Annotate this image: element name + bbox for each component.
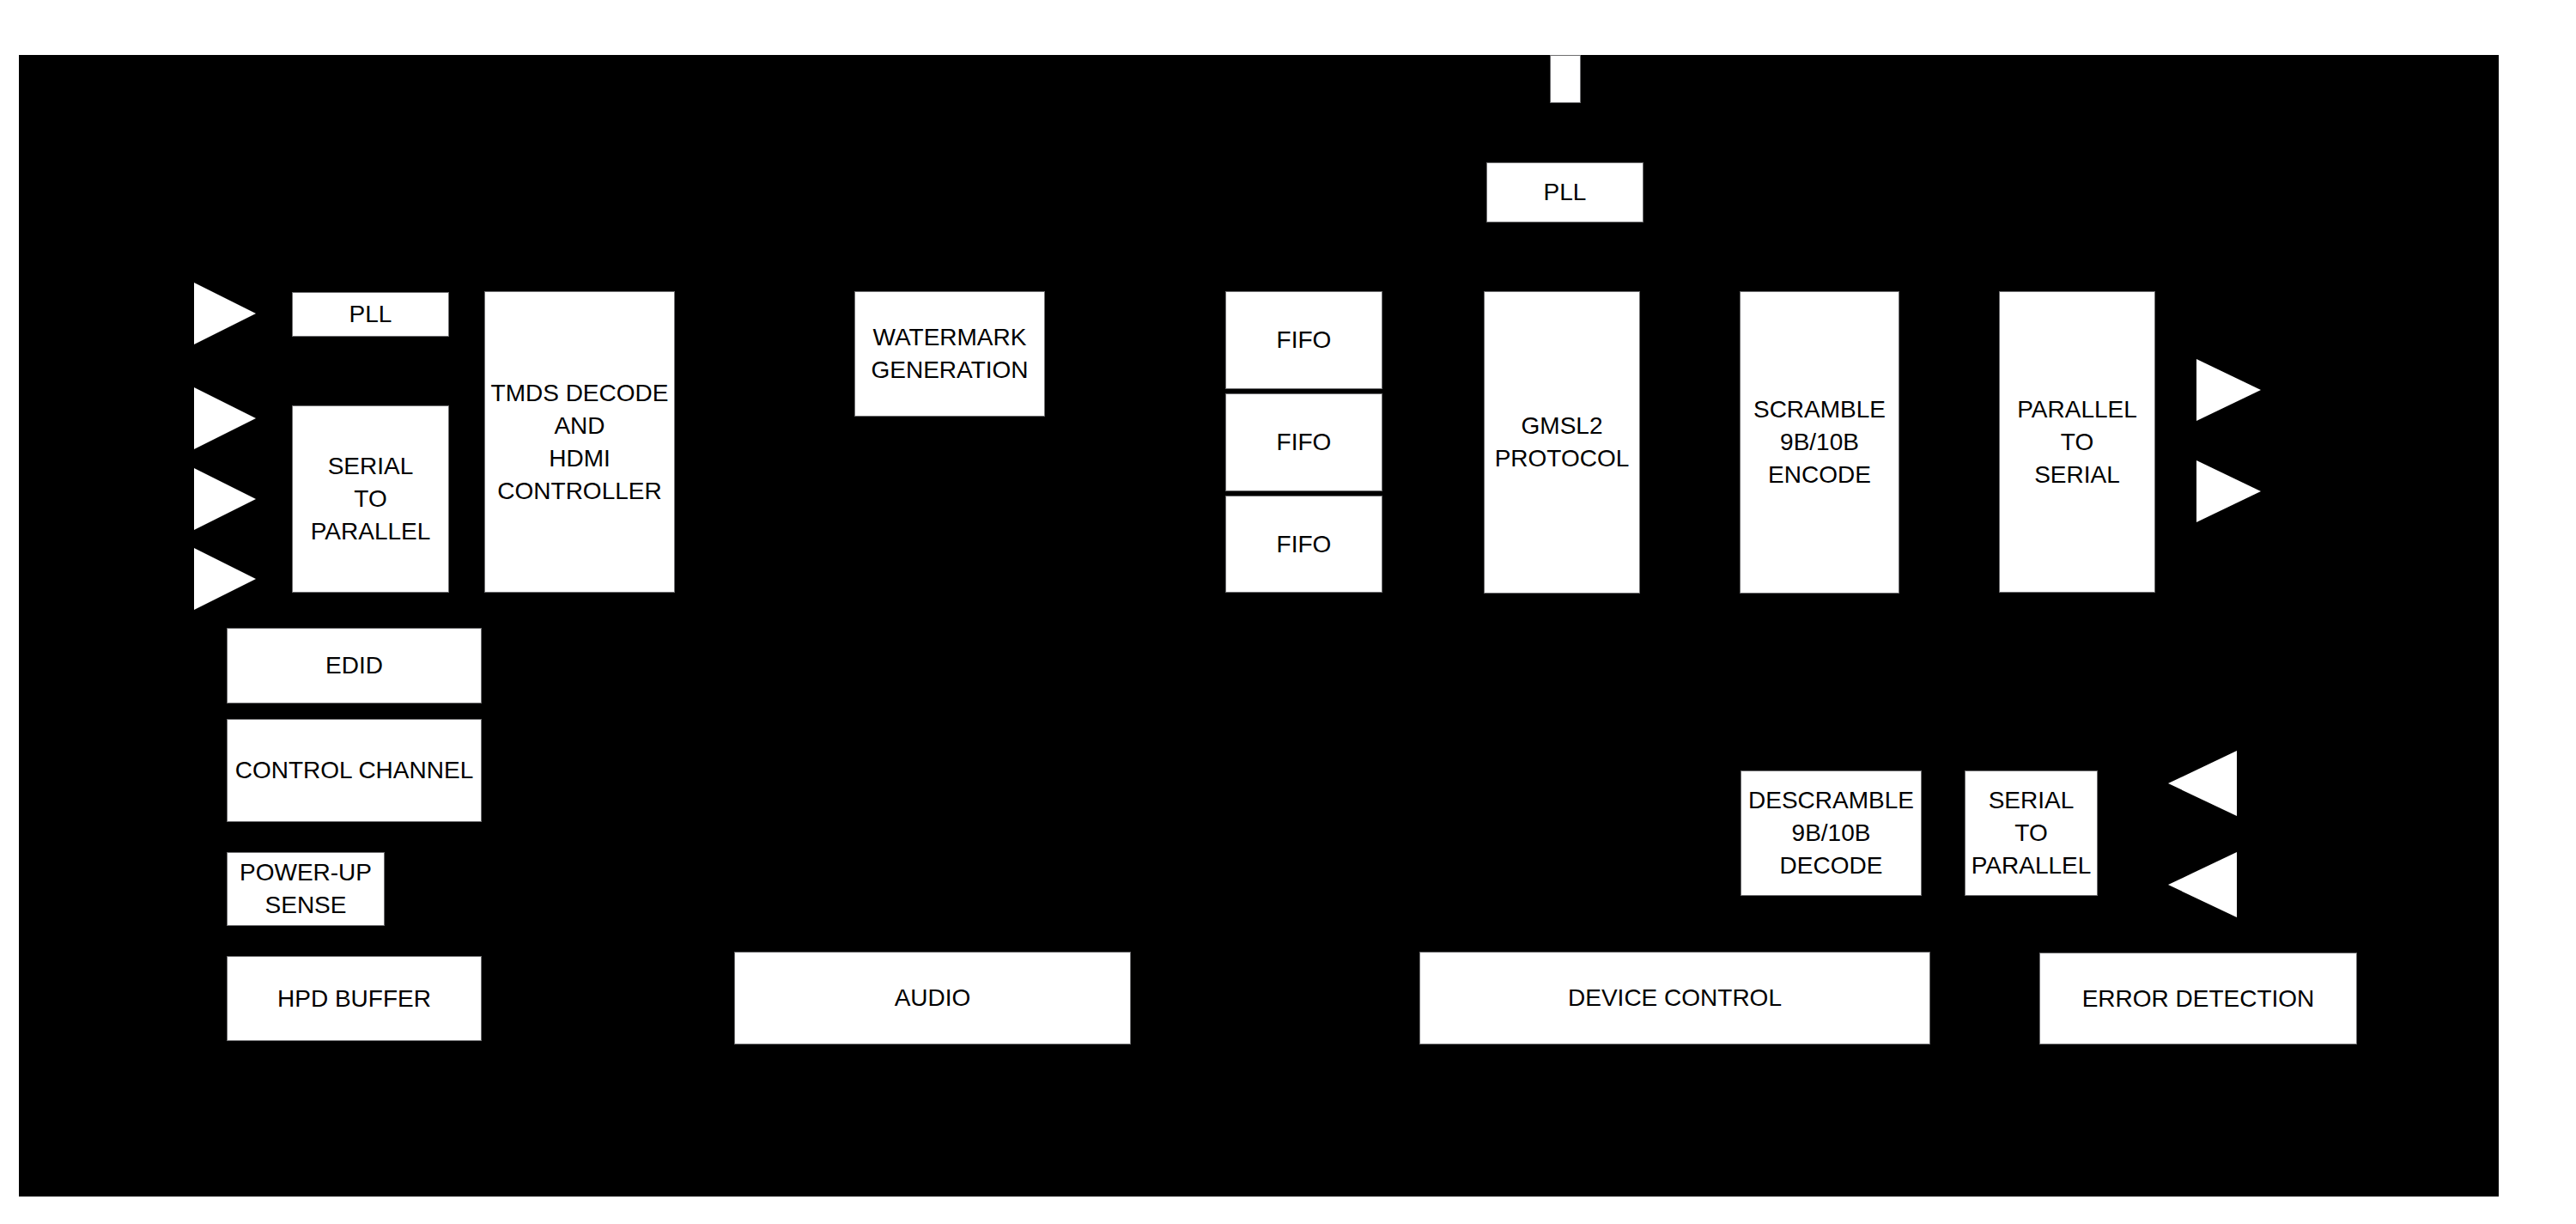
block-descramble-9b10b-decode: DESCRAMBLE 9B/10B DECODE [1741, 770, 1922, 896]
block-serial-to-parallel-input: SERIAL TO PARALLEL [292, 405, 449, 593]
block-label-line: SERIAL [328, 450, 414, 483]
block-label-line: TO [2061, 426, 2093, 459]
block-label-line: ENCODE [1768, 459, 1871, 491]
block-label: EDID [325, 649, 383, 682]
block-label-line: POWER-UP [240, 856, 372, 889]
output-arrow-icon [2196, 460, 2261, 522]
input-arrow-icon [194, 283, 256, 344]
block-parallel-to-serial: PARALLEL TO SERIAL [1999, 291, 2155, 593]
block-label-line: DECODE [1780, 849, 1883, 882]
block-device-control: DEVICE CONTROL [1419, 952, 1930, 1044]
block-label-line: PARALLEL [2017, 393, 2137, 426]
block-label-line: PARALLEL [311, 515, 431, 548]
block-label-line: SENSE [265, 889, 347, 922]
block-serial-to-parallel-reverse: SERIAL TO PARALLEL [1965, 770, 2098, 896]
block-gmsl2-protocol: GMSL2 PROTOCOL [1484, 291, 1640, 594]
block-fifo-2: FIFO [1225, 393, 1382, 491]
input-arrow-icon [194, 548, 256, 610]
block-label-line: 9B/10B [1780, 426, 1859, 459]
block-label-line: 9B/10B [1792, 817, 1871, 849]
block-diagram-canvas: PLL PLL SERIAL TO PARALLEL TMDS DECODE A… [0, 0, 2576, 1224]
block-label: CONTROL CHANNEL [235, 754, 473, 787]
block-label: PLL [1544, 176, 1587, 209]
block-label: FIFO [1277, 528, 1332, 561]
block-label-line: HDMI [549, 442, 611, 475]
reverse-input-arrow-icon [2168, 751, 2237, 816]
block-label-line: SERIAL [1989, 784, 2075, 817]
block-label-line: PARALLEL [1971, 849, 2092, 882]
block-label-line: DESCRAMBLE [1748, 784, 1914, 817]
block-label: FIFO [1277, 426, 1332, 459]
block-power-up-sense: POWER-UP SENSE [227, 852, 385, 926]
block-control-channel: CONTROL CHANNEL [227, 719, 482, 822]
block-label-line: SERIAL [2034, 459, 2120, 491]
block-edid: EDID [227, 628, 482, 703]
block-audio: AUDIO [734, 952, 1131, 1044]
block-scramble-9b10b-encode: SCRAMBLE 9B/10B ENCODE [1740, 291, 1899, 594]
block-label-line: SCRAMBLE [1753, 393, 1886, 426]
block-error-detection: ERROR DETECTION [2039, 953, 2357, 1044]
block-label: ERROR DETECTION [2082, 983, 2315, 1015]
block-label-line: AND [554, 410, 605, 442]
block-label-line: TMDS DECODE [491, 377, 669, 410]
block-label: DEVICE CONTROL [1568, 982, 1782, 1014]
block-fifo-3: FIFO [1225, 496, 1382, 593]
output-arrow-icon [2196, 359, 2261, 421]
block-label-line: TO [354, 483, 386, 515]
block-label-line: CONTROLLER [497, 475, 661, 508]
reverse-input-arrow-icon [2168, 852, 2237, 917]
block-label-line: GENERATION [871, 354, 1028, 387]
top-pin-pad [1550, 55, 1581, 103]
block-hpd-buffer: HPD BUFFER [227, 956, 482, 1041]
block-pll-left: PLL [292, 292, 449, 337]
block-label: HPD BUFFER [277, 983, 431, 1015]
block-label: PLL [349, 298, 392, 331]
block-label-line: TO [2014, 817, 2047, 849]
block-label-line: WATERMARK [873, 321, 1027, 354]
block-tmds-decode-hdmi-controller: TMDS DECODE AND HDMI CONTROLLER [484, 291, 675, 593]
block-watermark-generation: WATERMARK GENERATION [854, 291, 1045, 417]
block-label: FIFO [1277, 324, 1332, 356]
input-arrow-icon [194, 468, 256, 530]
input-arrow-icon [194, 387, 256, 449]
block-label-line: PROTOCOL [1495, 442, 1630, 475]
block-label-line: GMSL2 [1522, 410, 1603, 442]
block-label: AUDIO [895, 982, 971, 1014]
block-fifo-1: FIFO [1225, 291, 1382, 389]
block-pll-top: PLL [1486, 162, 1643, 222]
